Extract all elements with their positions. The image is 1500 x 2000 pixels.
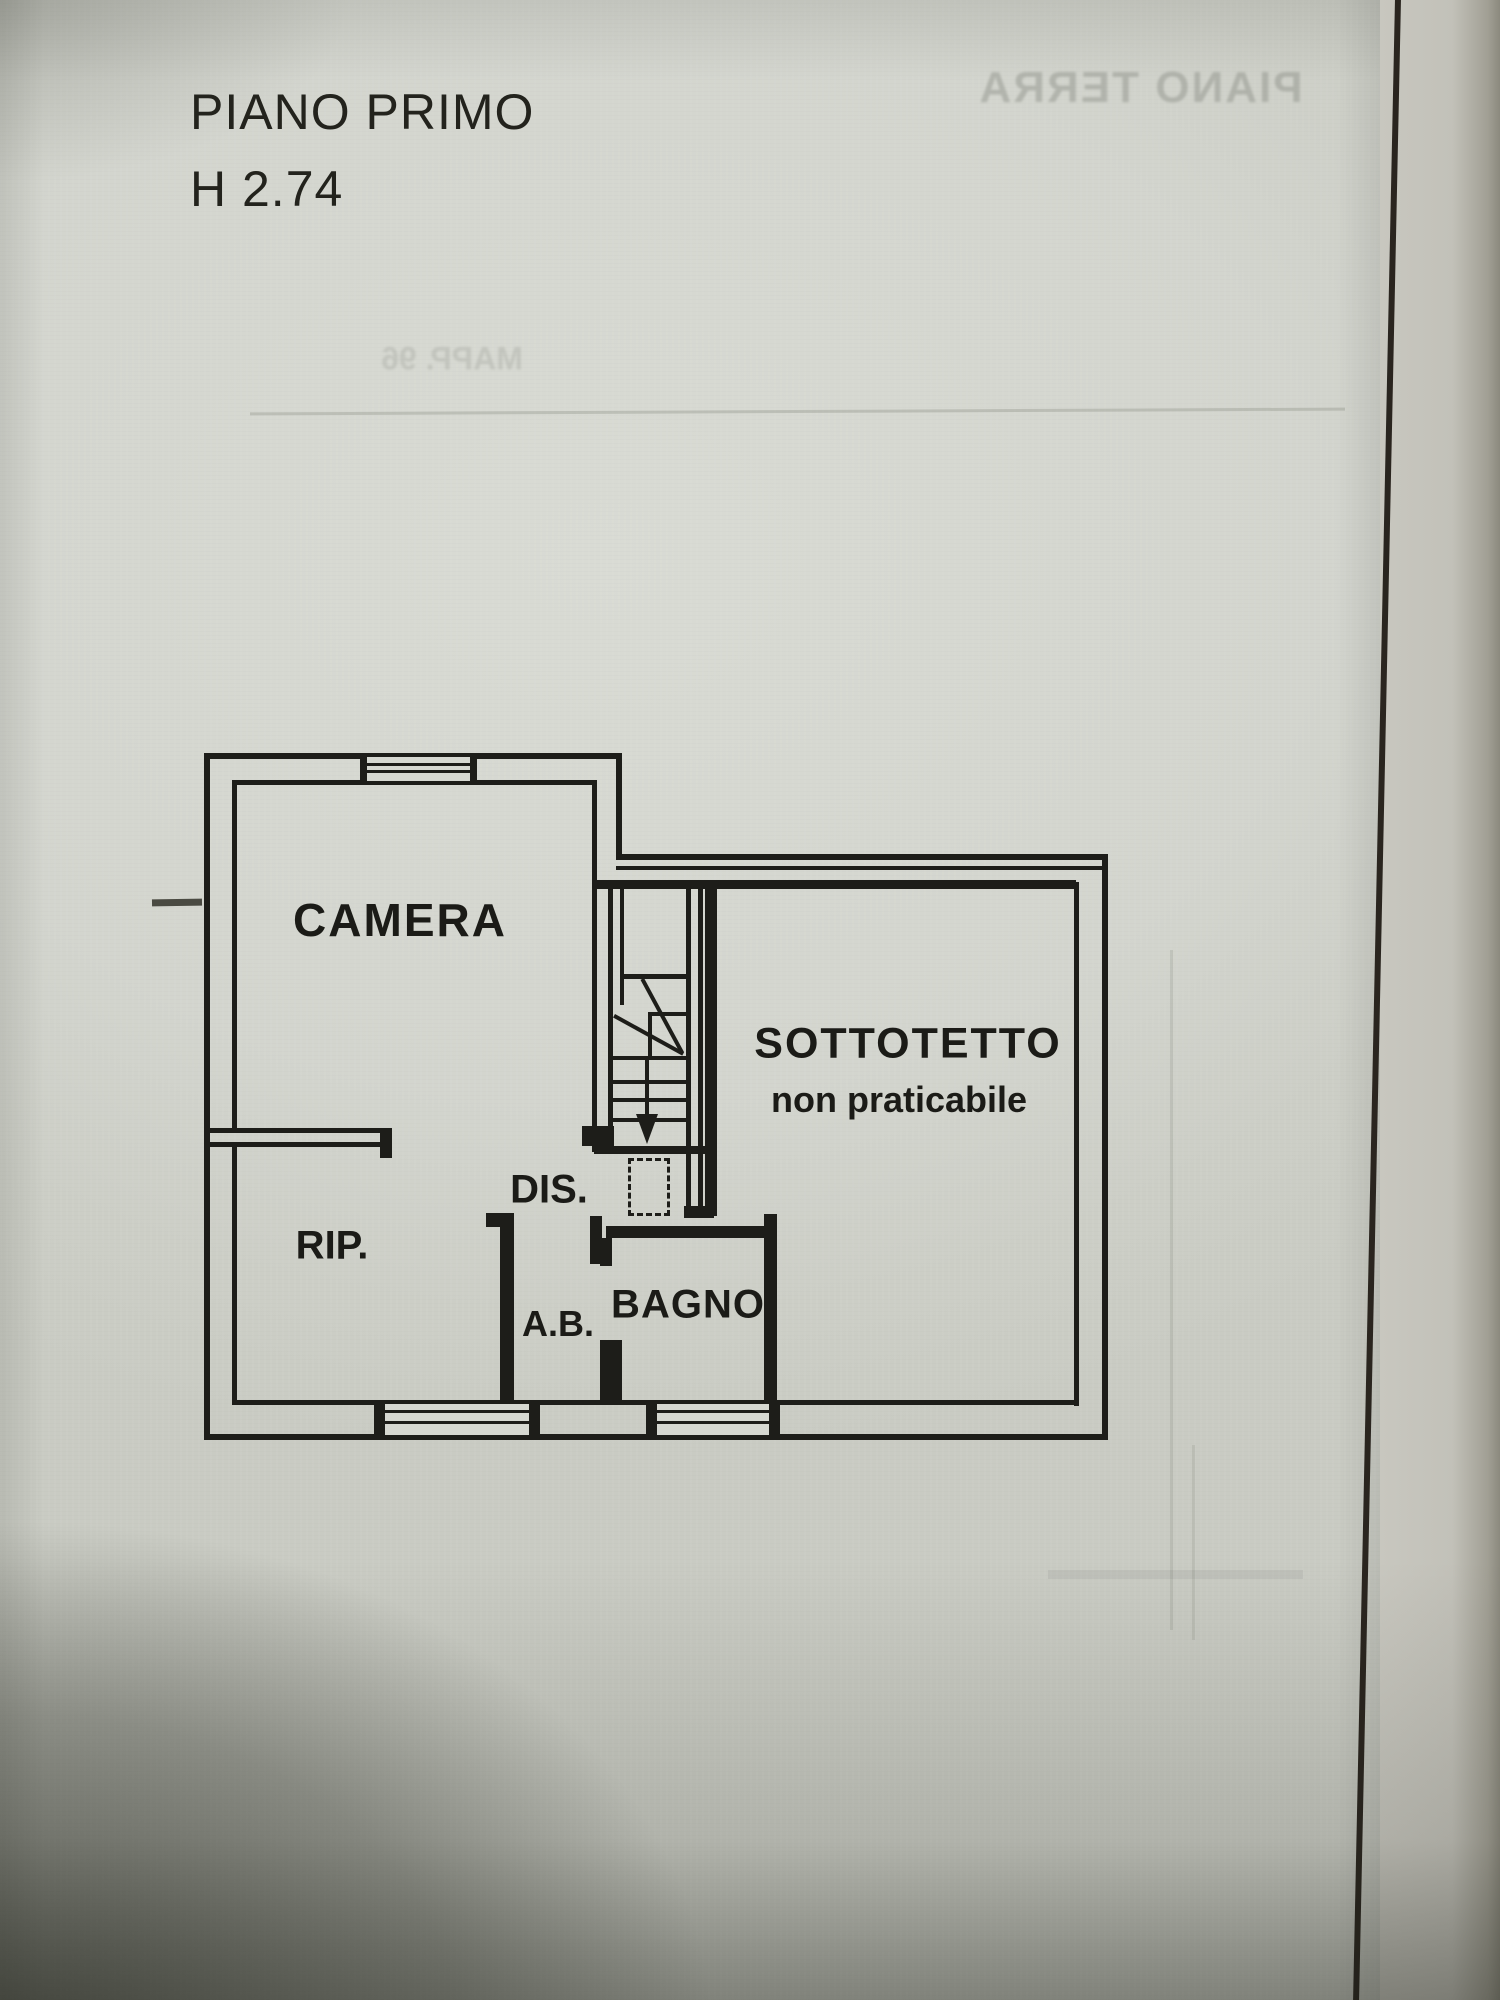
wall-inner-right [1074, 882, 1079, 1406]
wall-stair-right-b [698, 889, 703, 1216]
window-bottom-bagno [646, 1400, 780, 1440]
wall-stair-right-a [686, 889, 691, 1216]
wall-stair-bottom [594, 1146, 708, 1154]
dashed-duct-symbol [628, 1158, 670, 1216]
jamb-rip-ab-cap [486, 1213, 514, 1227]
wall-camera-right [592, 780, 597, 1152]
wall-inner-bottom-seg2 [540, 1400, 646, 1405]
wall-stair-left [608, 889, 613, 1152]
wall-bagno-right [764, 1214, 777, 1404]
wall-camera-rip-bottom [204, 1142, 392, 1147]
stair-tread-1 [613, 1056, 690, 1060]
wall-outer-left [204, 753, 210, 1440]
jamb-camera-rip-end [380, 1128, 392, 1158]
wall-inner-top-camera-left [232, 780, 360, 785]
wall-inner-top-camera-right [477, 780, 596, 785]
wall-outer-top-right-block [616, 854, 1108, 860]
window-top-camera [360, 753, 477, 785]
wall-ab-bagno-stub [600, 1238, 612, 1266]
room-label-camera: CAMERA [293, 893, 507, 947]
room-label-sottotetto: SOTTOTETTO [754, 1020, 1061, 1069]
wall-outer-right [1102, 854, 1108, 1440]
wall-rip-ab [500, 1213, 514, 1404]
room-label-bagno: BAGNO [611, 1283, 765, 1328]
stair-down-arrow-icon [636, 1114, 658, 1144]
floor-plan-drawing: CAMERA SOTTOTETTO non praticabile DIS. R… [0, 0, 1500, 2000]
stair-quarter-hline [648, 1012, 690, 1016]
wall-inner-bottom-seg1 [232, 1400, 374, 1405]
wall-step-outer [616, 753, 622, 860]
stair-tread-2 [613, 1080, 690, 1084]
wall-inner-left-lower [232, 1147, 237, 1404]
wall-rooms-top-thick [594, 880, 1076, 889]
stair-arrow-shaft [645, 1056, 649, 1118]
wall-inner-left-upper [232, 780, 237, 1130]
room-label-rip: RIP. [296, 1224, 369, 1269]
wall-bagno-top [606, 1226, 772, 1238]
room-label-dis: DIS. [510, 1168, 588, 1213]
wall-ab-bagno-lower [600, 1340, 622, 1404]
scanned-page: PIANO TERRA MAPP. 96 PIANO PRIMO H 2.74 [0, 0, 1500, 2000]
room-label-ab: A.B. [522, 1303, 594, 1345]
stair-strip-line [620, 889, 624, 1005]
wall-inner-bottom-seg3 [780, 1400, 1074, 1405]
stair-tread-3 [613, 1098, 690, 1102]
room-sublabel-non-praticabile: non praticabile [771, 1079, 1027, 1121]
wall-outer-top-right-inner-line [616, 866, 1104, 870]
jamb-connector-cap [684, 1206, 714, 1218]
window-bottom-left [374, 1400, 540, 1440]
wall-sottotetto-left [705, 889, 717, 1216]
wall-camera-rip-top [204, 1128, 392, 1133]
stair-landing-line [620, 974, 690, 979]
